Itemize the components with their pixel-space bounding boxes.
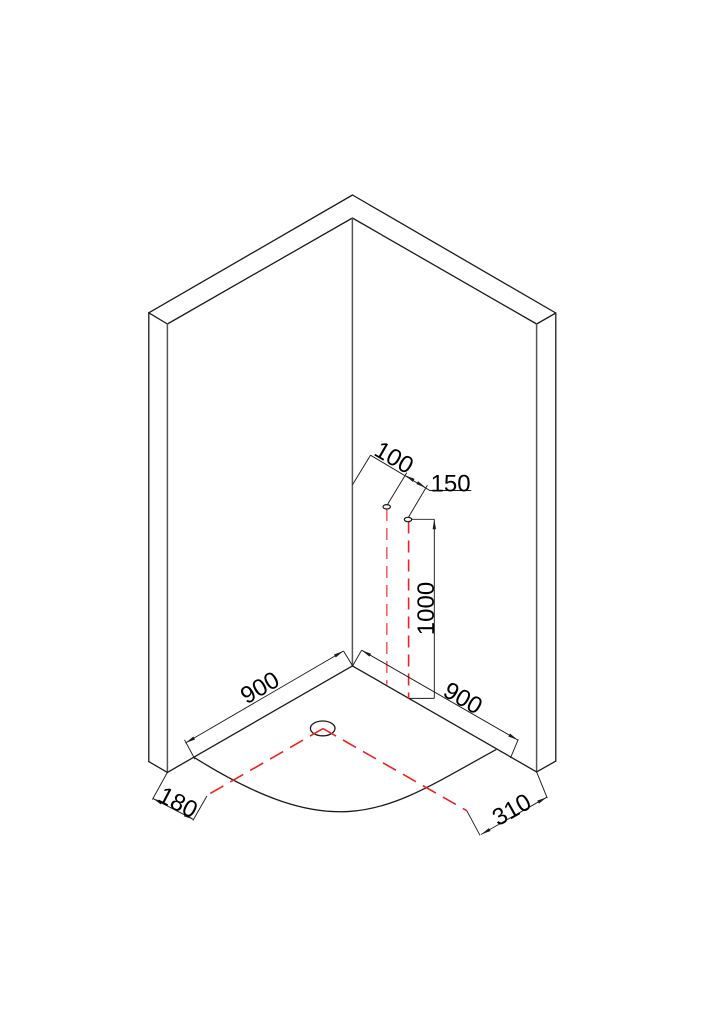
svg-text:150: 150	[431, 470, 471, 497]
svg-text:1000: 1000	[413, 582, 440, 635]
